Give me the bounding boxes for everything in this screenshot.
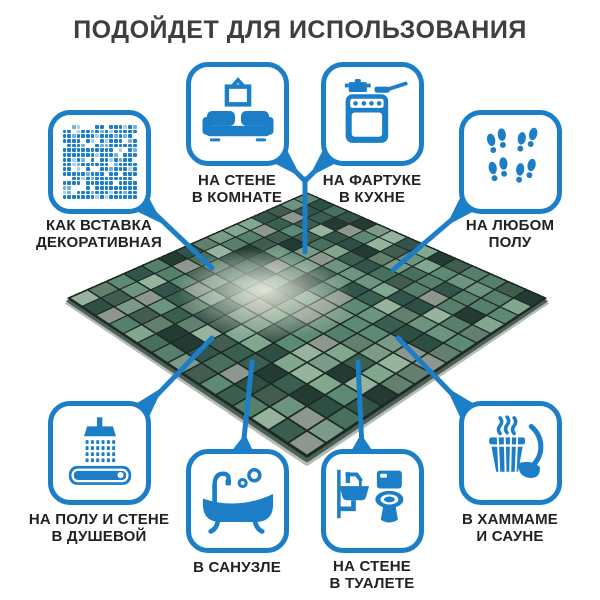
mosaic-pattern-icon <box>63 125 137 199</box>
toilet-sink-icon <box>334 462 412 540</box>
bathtub-icon <box>199 462 277 540</box>
label-shower: НА ПОЛУ И СТЕНЕ В ДУШЕВОЙ <box>9 511 189 545</box>
callout-bathroom <box>186 449 289 553</box>
callout-shower <box>48 401 151 505</box>
infographic: ПОДОЙДЕТ ДЛЯ ИСПОЛЬЗОВАНИЯ <box>0 0 600 600</box>
connector-line <box>358 362 362 448</box>
sauna-bucket-icon <box>472 414 550 492</box>
callout-any-floor <box>459 110 562 214</box>
shower-icon <box>62 415 138 491</box>
sofa-picture-icon <box>201 76 275 152</box>
connector-line <box>243 362 252 448</box>
connector-line <box>398 338 454 396</box>
stove-icon <box>335 76 411 152</box>
label-decorative-insert: КАК ВСТАВКА ДЕКОРАТИВНАЯ <box>9 217 189 251</box>
connector-lines <box>0 0 600 600</box>
label-kitchen-backsplash: НА ФАРТУКЕ В КУХНЕ <box>282 172 462 206</box>
connector-line <box>156 338 212 396</box>
callout-toilet <box>321 449 424 553</box>
label-sauna: В ХАММАМЕ И САУНЕ <box>420 511 600 545</box>
callout-sauna <box>459 401 562 505</box>
label-toilet: НА СТЕНЕ В ТУАЛЕТЕ <box>282 558 462 592</box>
callout-kitchen-backsplash <box>321 62 424 166</box>
callout-room-wall <box>186 62 289 166</box>
callout-decorative-insert <box>48 110 151 214</box>
label-any-floor: НА ЛЮБОМ ПОЛУ <box>420 217 600 251</box>
footprints-icon <box>474 125 548 199</box>
